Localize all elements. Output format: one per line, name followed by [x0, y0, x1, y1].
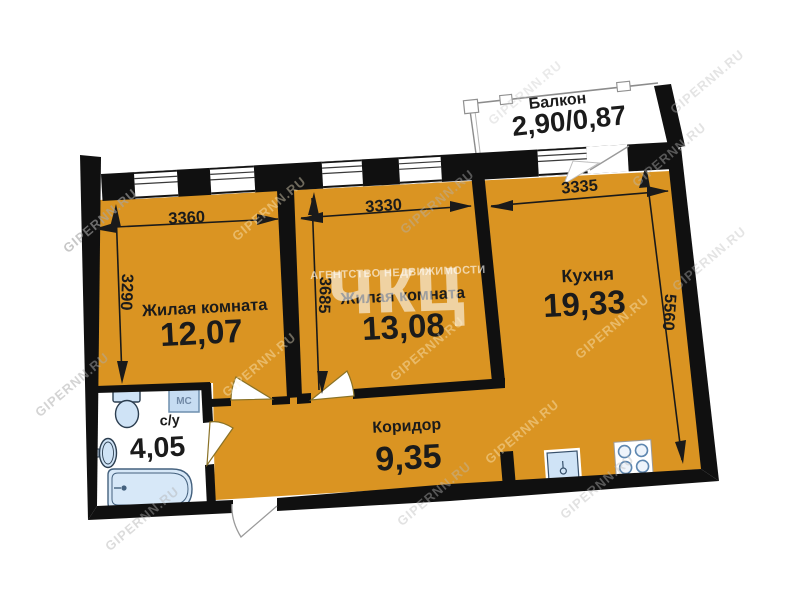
svg-text:12,07: 12,07	[159, 312, 243, 353]
svg-text:с/у: с/у	[159, 412, 180, 429]
svg-text:3290: 3290	[117, 274, 136, 311]
svg-text:5560: 5560	[659, 293, 680, 331]
svg-text:чкц: чкц	[327, 238, 466, 332]
svg-text:МС: МС	[176, 396, 192, 407]
svg-text:9,35: 9,35	[374, 437, 442, 478]
svg-text:4,05: 4,05	[129, 431, 186, 466]
svg-text:3330: 3330	[365, 196, 403, 217]
svg-text:3335: 3335	[560, 176, 598, 197]
svg-text:Коридор: Коридор	[372, 416, 442, 437]
svg-text:3360: 3360	[168, 208, 206, 228]
